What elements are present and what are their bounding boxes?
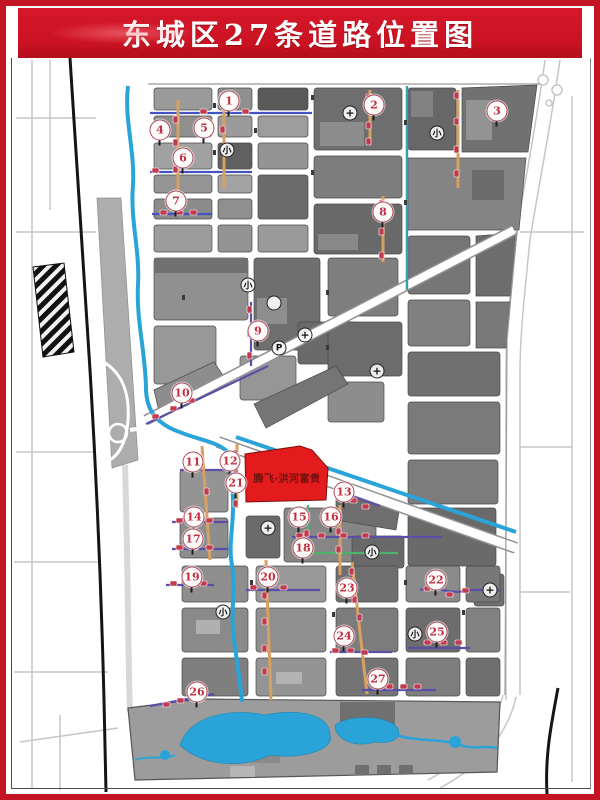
school-icon: 小: [408, 627, 423, 642]
landmark-icon: [267, 296, 282, 311]
hospital-icon: +: [298, 328, 313, 343]
road-marker-1: 1: [219, 91, 240, 112]
road-marker-3: 3: [487, 101, 508, 122]
road-marker-12: 12: [220, 451, 241, 472]
school-icon: 小: [365, 545, 380, 560]
road-marker-23: 23: [337, 578, 358, 599]
hospital-icon: +: [343, 106, 358, 121]
road-marker-5: 5: [194, 118, 215, 139]
parcel-label: 腾飞·洪河富贵: [246, 474, 328, 486]
wetland-park: [128, 699, 500, 780]
parking-icon: P: [272, 341, 287, 356]
rail-yard-hatch: [33, 263, 74, 357]
map-title-banner: 东城区27条道路位置图: [18, 8, 582, 58]
road-marker-6: 6: [173, 148, 194, 169]
road-marker-8: 8: [373, 202, 394, 223]
road-marker-14: 14: [184, 507, 205, 528]
school-icon: 小: [220, 143, 235, 158]
road-marker-19: 19: [182, 567, 203, 588]
road-marker-22: 22: [426, 570, 447, 591]
road-marker-11: 11: [183, 452, 204, 473]
road-marker-16: 16: [321, 507, 342, 528]
map-base-art: [0, 0, 600, 800]
road-marker-2: 2: [364, 95, 385, 116]
road-marker-4: 4: [150, 120, 171, 141]
school-icon: 小: [241, 278, 256, 293]
hospital-icon: +: [370, 364, 385, 379]
map-page: 腾飞·洪河富贵 12345678910111213141516171819202…: [0, 0, 600, 800]
map-canvas: 腾飞·洪河富贵 12345678910111213141516171819202…: [0, 0, 600, 800]
road-marker-20: 20: [258, 567, 279, 588]
road-marker-15: 15: [289, 507, 310, 528]
road-marker-25: 25: [427, 622, 448, 643]
hospital-icon: +: [261, 521, 276, 536]
school-icon: 小: [430, 126, 445, 141]
highway-band: [97, 198, 150, 712]
road-marker-17: 17: [183, 529, 204, 550]
banner-smudge: [48, 22, 198, 44]
school-icon: 小: [216, 605, 231, 620]
road-marker-13: 13: [334, 482, 355, 503]
road-marker-26: 26: [187, 682, 208, 703]
road-marker-9: 9: [248, 321, 269, 342]
road-marker-7: 7: [166, 191, 187, 212]
road-marker-21: 21: [226, 473, 247, 494]
road-marker-18: 18: [293, 538, 314, 559]
road-marker-27: 27: [368, 669, 389, 690]
hospital-icon: +: [483, 583, 498, 598]
road-marker-10: 10: [172, 383, 193, 404]
road-marker-24: 24: [334, 626, 355, 647]
